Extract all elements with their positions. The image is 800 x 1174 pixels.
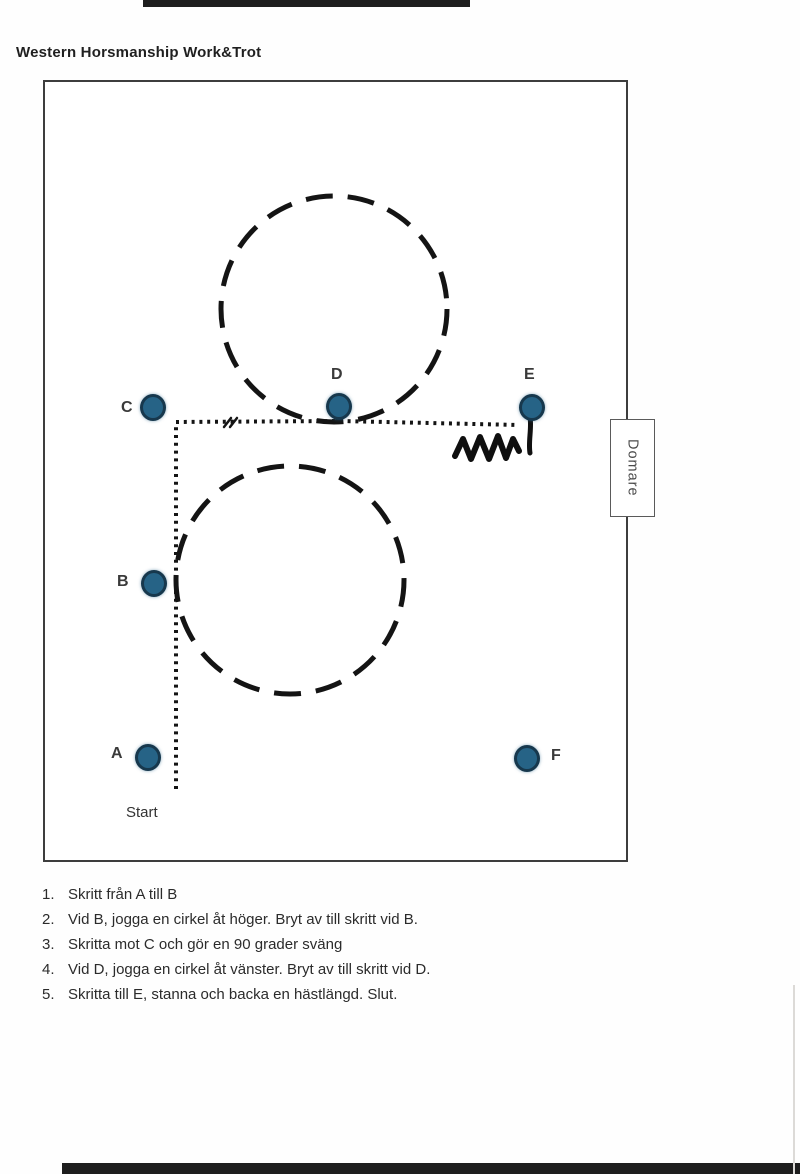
instruction-text: Skritt från A till B (68, 882, 642, 907)
instruction-number: 5. (42, 982, 68, 1007)
instruction-number: 2. (42, 907, 68, 932)
marker-label-c: C (121, 399, 133, 417)
instruction-list: 1. Skritt från A till B 2. Vid B, jogga … (42, 882, 642, 1007)
judge-box: Domare (610, 419, 655, 517)
instruction-item: 3. Skritta mot C och gör en 90 grader sv… (42, 932, 642, 957)
instruction-text: Vid B, jogga en cirkel åt höger. Bryt av… (68, 907, 642, 932)
instruction-text: Skritta till E, stanna och backa en häst… (68, 982, 642, 1007)
instruction-number: 1. (42, 882, 68, 907)
marker-dot-e (519, 394, 545, 421)
marker-dot-c (140, 394, 166, 421)
marker-label-b: B (117, 573, 129, 591)
scan-edge-line (793, 985, 795, 1174)
marker-dot-f (514, 745, 540, 772)
instruction-text: Skritta mot C och gör en 90 grader sväng (68, 932, 642, 957)
marker-dot-b (141, 570, 167, 597)
instruction-item: 1. Skritt från A till B (42, 882, 642, 907)
pattern-sheet-page: Western Horsmanship Work&Trot A B C D E … (0, 0, 800, 1174)
marker-label-d: D (331, 366, 343, 384)
marker-label-f: F (551, 747, 561, 765)
instruction-item: 2. Vid B, jogga en cirkel åt höger. Bryt… (42, 907, 642, 932)
instruction-number: 4. (42, 957, 68, 982)
judge-box-label: Domare (625, 439, 641, 497)
marker-dot-d (326, 393, 352, 420)
instruction-text: Vid D, jogga en cirkel åt vänster. Bryt … (68, 957, 642, 982)
instruction-number: 3. (42, 932, 68, 957)
instruction-item: 5. Skritta till E, stanna och backa en h… (42, 982, 642, 1007)
marker-label-e: E (524, 366, 535, 384)
start-label: Start (126, 804, 158, 821)
marker-label-a: A (111, 745, 123, 763)
arena-outline (43, 80, 628, 862)
page-title: Western Horsmanship Work&Trot (16, 44, 261, 61)
marker-dot-a (135, 744, 161, 771)
scan-artifact-top-bar (143, 0, 470, 7)
instruction-item: 4. Vid D, jogga en cirkel åt vänster. Br… (42, 957, 642, 982)
scan-artifact-bottom-bar (62, 1163, 800, 1174)
